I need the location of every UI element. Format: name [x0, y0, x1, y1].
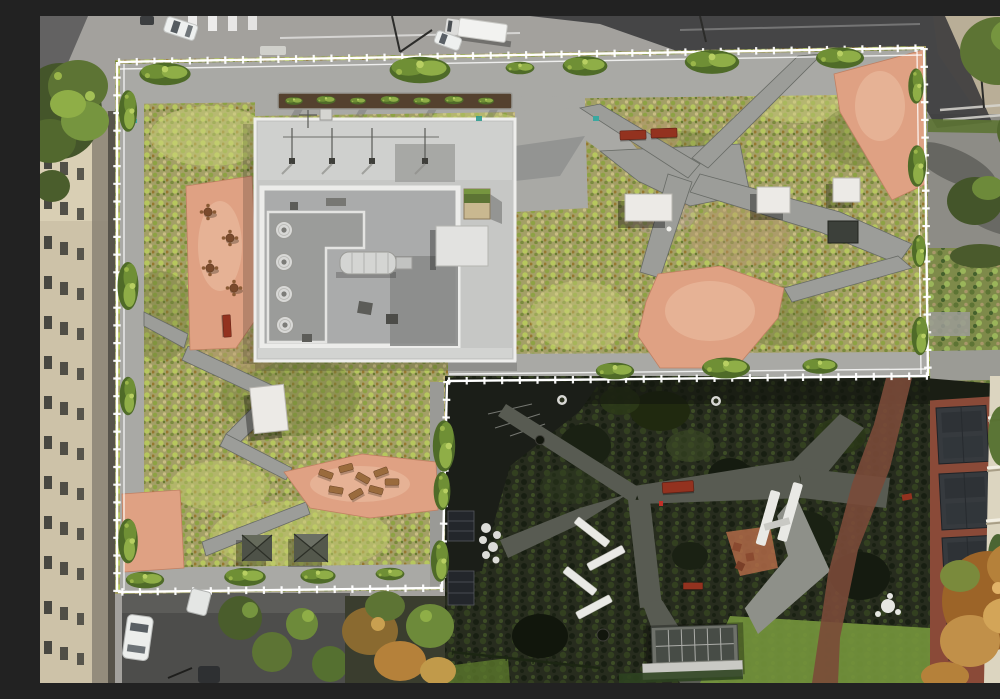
- linear-planter: [278, 93, 512, 109]
- teal-object: [476, 116, 482, 121]
- car-at-kerb: [260, 46, 286, 55]
- skylight-box: [833, 178, 860, 202]
- dark-car-bottom: [198, 666, 220, 683]
- terrace-slab: [930, 349, 1000, 381]
- aerial-photo-figure: Top-down aerial photograph of an L-shape…: [40, 16, 1000, 683]
- red-bench-courtyard: [683, 583, 703, 591]
- red-bench-pair: [620, 130, 646, 141]
- courtyard: [445, 376, 930, 683]
- hedge-row-right: [928, 119, 1000, 134]
- core-bottom-parapet: [258, 348, 512, 358]
- lounger: [385, 479, 399, 488]
- mechanical-penthouse: [243, 110, 517, 371]
- round-planter-dark: [536, 436, 545, 445]
- red-bench-courtyard: [662, 481, 694, 496]
- skylight-box: [757, 187, 790, 213]
- core-top-strip: [258, 122, 512, 180]
- red-bench-terrace: [221, 315, 231, 338]
- aerial-photo: [40, 16, 1000, 683]
- utility-box: [320, 109, 332, 120]
- white-sphere: [667, 227, 672, 232]
- person-red: [659, 501, 663, 506]
- vent-box: [828, 221, 858, 243]
- dark-car-top: [140, 16, 154, 25]
- white-car-bottom: [122, 614, 154, 661]
- teal-object: [593, 116, 599, 121]
- skylight-box: [625, 194, 672, 221]
- core-shadow-left: [243, 124, 255, 364]
- trees-bottom-center: [342, 591, 456, 683]
- stool: [745, 552, 754, 561]
- pyramid-skylight: [288, 534, 328, 567]
- ahu-box: [436, 226, 488, 266]
- red-bench-pair: [651, 128, 677, 139]
- round-planter-dark: [597, 629, 609, 641]
